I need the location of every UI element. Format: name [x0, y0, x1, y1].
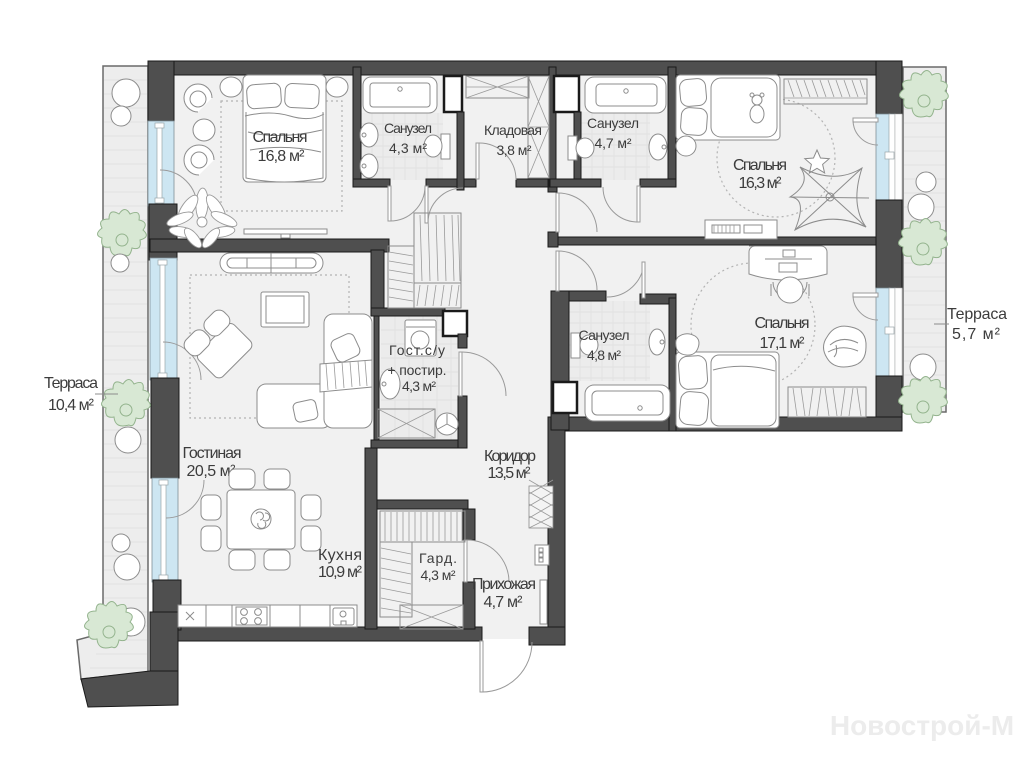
svg-text:4,3 м²: 4,3 м²: [421, 567, 456, 583]
svg-text:4,3 м²: 4,3 м²: [389, 140, 427, 156]
svg-text:Гард.: Гард.: [419, 550, 457, 566]
svg-text:13,5 м²: 13,5 м²: [488, 465, 532, 482]
svg-text:Коридор: Коридор: [484, 448, 536, 465]
svg-text:Новострой-М: Новострой-М: [830, 710, 1014, 741]
svg-text:4,7 м²: 4,7 м²: [595, 135, 632, 151]
svg-text:Терраса: Терраса: [947, 306, 1007, 323]
svg-text:Кухня: Кухня: [318, 547, 362, 564]
svg-text:3,8 м²: 3,8 м²: [497, 142, 532, 158]
svg-text:5,7 м²: 5,7 м²: [952, 326, 1001, 343]
svg-text:16,3 м²: 16,3 м²: [739, 175, 783, 192]
svg-text:Спальня: Спальня: [755, 315, 810, 332]
svg-text:Санузел: Санузел: [587, 115, 639, 131]
svg-text:Кладовая: Кладовая: [484, 122, 542, 138]
svg-text:Санузел: Санузел: [579, 327, 630, 343]
svg-text:10,4 м²: 10,4 м²: [48, 397, 95, 414]
svg-text:Спальня: Спальня: [253, 129, 308, 146]
svg-text:+ постир.: + постир.: [388, 362, 447, 378]
svg-text:Гост.с/у: Гост.с/у: [389, 342, 445, 358]
svg-text:4,7 м²: 4,7 м²: [484, 594, 524, 611]
svg-text:Терраса: Терраса: [44, 375, 98, 392]
svg-text:Спальня: Спальня: [733, 157, 787, 174]
svg-text:Санузел: Санузел: [384, 120, 432, 136]
svg-text:16,8 м²: 16,8 м²: [258, 148, 306, 165]
svg-text:4,3 м²: 4,3 м²: [402, 378, 436, 394]
svg-text:Гостиная: Гостиная: [183, 445, 242, 462]
svg-text:17,1 м²: 17,1 м²: [760, 335, 806, 352]
svg-text:Прихожая: Прихожая: [472, 576, 536, 593]
svg-text:10,9 м²: 10,9 м²: [318, 564, 363, 581]
svg-text:4,8 м²: 4,8 м²: [587, 347, 621, 363]
